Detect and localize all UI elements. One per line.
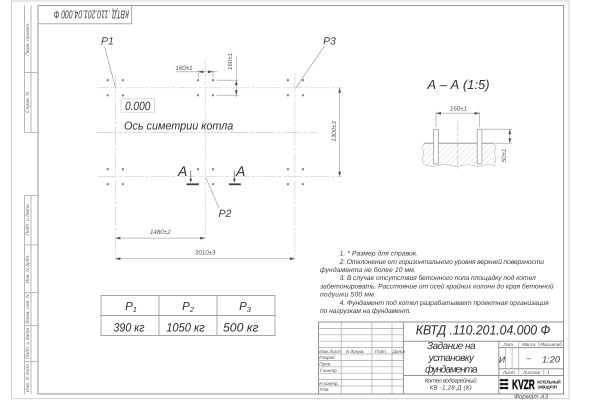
svg-text:фундамента: фундамента [425,364,478,375]
svg-text:А: А [235,163,245,179]
svg-text:N докум.: N докум. [346,349,365,354]
svg-text:А – А (1:5): А – А (1:5) [426,77,489,92]
svg-text:Масштаб: Масштаб [540,342,562,347]
svg-text:160±1: 160±1 [227,53,234,70]
svg-text:А: А [177,163,187,179]
svg-text:Лит.: Лит. [502,342,514,347]
svg-text:Н.контр.: Н.контр. [319,381,338,386]
svg-text:1300±3: 1300±3 [331,121,338,142]
svg-text:КВТД .110.201.04.000 Ф: КВТД .110.201.04.000 Ф [416,323,551,338]
svg-text:КОТЕЛЬНЫЙ: КОТЕЛЬНЫЙ [537,379,560,384]
svg-text:Изм.Лист: Изм.Лист [319,349,341,354]
svg-text:–: – [525,353,531,363]
svg-text:Взам. инв. N: Взам. инв. N [25,294,31,324]
svg-text:Разраб.: Разраб. [319,355,336,360]
svg-text:Лист: Лист [502,370,515,375]
svg-text:1050 кг: 1050 кг [166,320,205,334]
svg-text:установку: установку [428,353,475,364]
svg-text:3. В случае отсутствия бетонно: 3. В случае отсутствия бетонного пола пл… [340,275,536,282]
svg-text:Справ. N: Справ. N [25,92,31,113]
svg-text:1: 1 [547,370,550,375]
svg-text:50±1: 50±1 [501,149,508,163]
svg-text:И: И [499,354,506,364]
svg-text:Масса: Масса [522,342,536,347]
svg-text:2. Отклонение от горизонтально: 2. Отклонение от горизонтального уровня … [339,258,545,266]
svg-text:Перв. примен.: Перв. примен. [25,22,31,55]
svg-text:Задание на: Задание на [427,341,476,352]
svg-text:4. Фундамент под котел разраба: 4. Фундамент под котел разрабатывает про… [340,300,550,307]
svg-text:Р1: Р1 [101,36,114,48]
svg-text:ЗАВОД РЭП: ЗАВОД РЭП [537,385,557,390]
svg-text:Инв. N дубл.: Инв. N дубл. [25,255,31,284]
svg-text:КВТД .110.201.04.000 Ф: КВТД .110.201.04.000 Ф [54,7,129,19]
svg-text:Пров.: Пров. [319,362,331,367]
svg-text:Дата: Дата [392,349,406,354]
svg-text:KVZR: KVZR [512,377,535,392]
svg-text:Листов: Листов [522,370,540,375]
svg-text:Т.контр.: Т.контр. [319,368,338,373]
svg-text:390 кг: 390 кг [114,320,145,334]
svg-text:3010±3: 3010±3 [195,250,216,257]
svg-text:160±1: 160±1 [175,65,192,72]
svg-text:забетонировать. Расстояние от: забетонировать. Расстояние от осей крайн… [319,282,554,290]
svg-text:160±1: 160±1 [450,106,467,113]
svg-text:500 кг: 500 кг [223,320,259,334]
svg-text:Подп. и дата: Подп. и дата [25,204,31,236]
svg-text:Р2: Р2 [219,208,232,220]
svg-text:1:20: 1:20 [542,354,560,364]
svg-text:Утв.: Утв. [319,387,329,392]
svg-text:1480±2: 1480±2 [150,229,171,236]
svg-text:по нагрузкам на фундамент.: по нагрузкам на фундамент. [320,308,411,315]
svg-text:Подп.: Подп. [375,349,387,354]
svg-text:подушки 500 мм.: подушки 500 мм. [320,292,376,299]
svg-text:0.000: 0.000 [125,99,151,113]
svg-text:КВ -1,28 Д (К): КВ -1,28 Д (К) [430,384,472,391]
svg-text:Подп. и дата: Подп. и дата [25,328,31,360]
svg-text:Котел водогрейный: Котел водогрейный [425,377,477,384]
svg-text:фундамента не более 10 мм.: фундамента не более 10 мм. [320,267,416,274]
svg-text:Р3: Р3 [323,36,336,48]
svg-text:Ось симетрии котла: Ось симетрии котла [124,120,233,132]
svg-text:1. * Размер для справок.: 1. * Размер для справок. [340,251,419,258]
svg-text:Инв. N подл.: Инв. N подл. [25,363,31,392]
